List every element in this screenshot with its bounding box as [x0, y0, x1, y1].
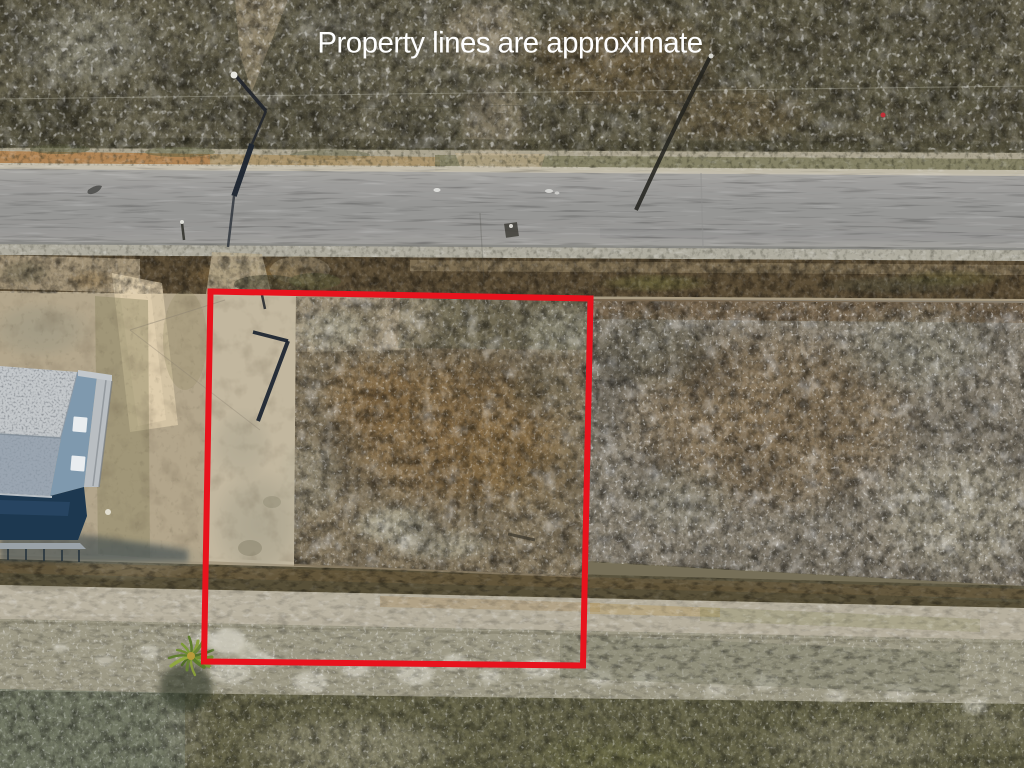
svg-text:Property lines are approximate: Property lines are approximate	[317, 27, 702, 60]
